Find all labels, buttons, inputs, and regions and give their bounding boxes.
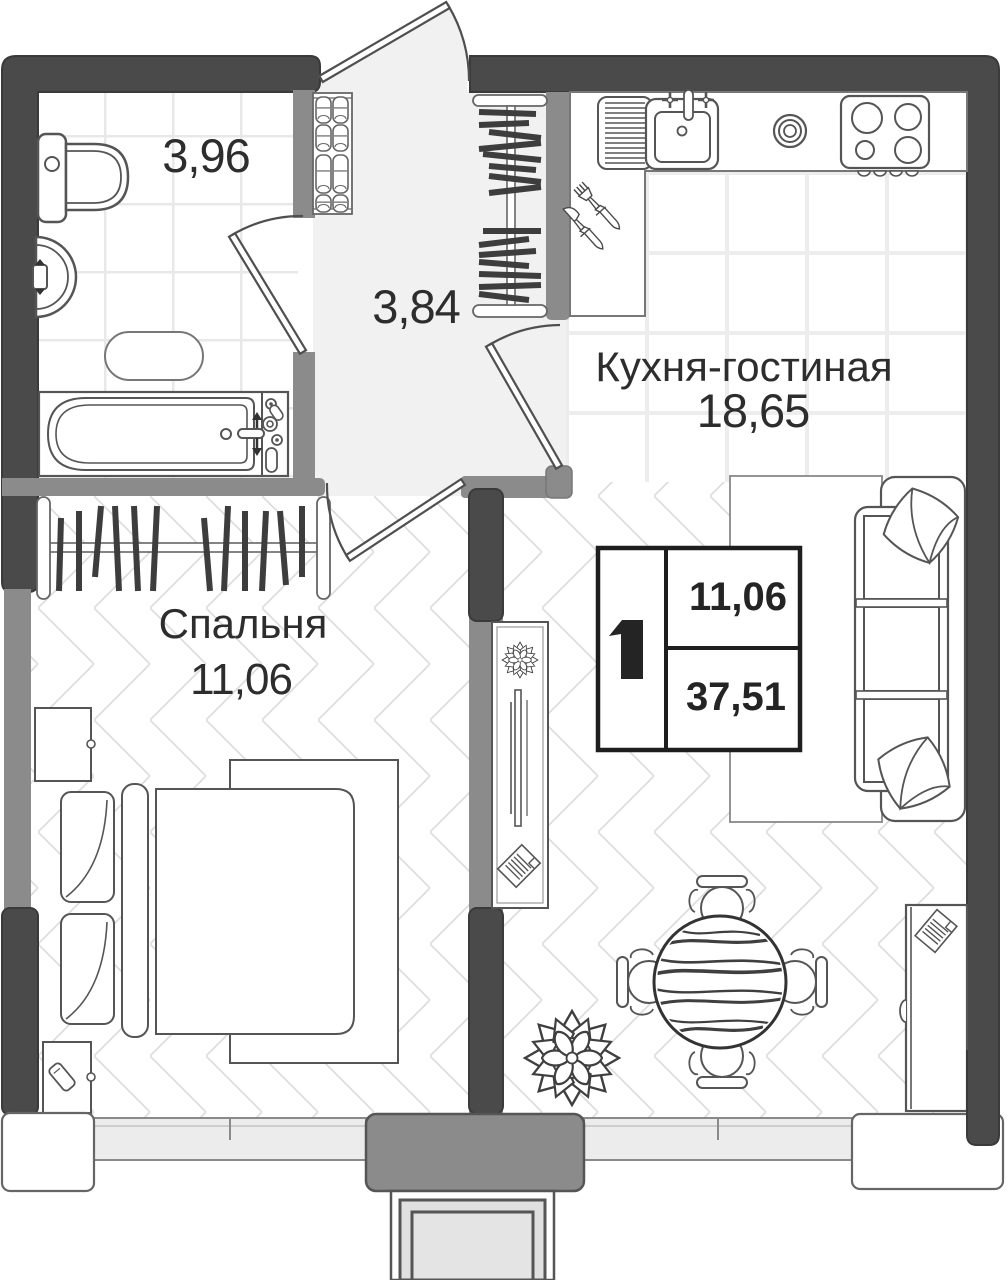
svg-text:Спальня: Спальня [159, 600, 328, 647]
svg-text:37,51: 37,51 [686, 675, 786, 719]
svg-text:18,65: 18,65 [697, 384, 810, 437]
svg-text:11,06: 11,06 [190, 655, 292, 704]
svg-text:Кухня-гостиная: Кухня-гостиная [595, 343, 892, 390]
svg-text:3,84: 3,84 [372, 280, 459, 333]
svg-text:11,06: 11,06 [689, 575, 787, 619]
svg-text:3,96: 3,96 [162, 129, 249, 182]
